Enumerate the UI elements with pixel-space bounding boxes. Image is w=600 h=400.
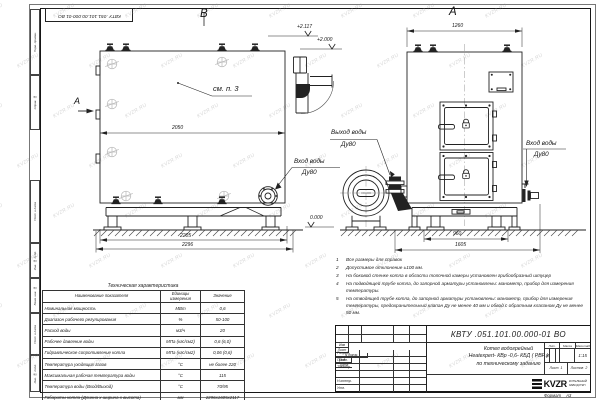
sign-cell (410, 378, 426, 385)
sign-cell (360, 364, 394, 371)
change-cell (410, 326, 426, 335)
spec-cell: Гидравлическое сопротивление котла (43, 347, 161, 358)
view-direction-label-a: А (74, 96, 80, 106)
sign-cell (360, 357, 394, 364)
format-size: А3 (566, 393, 571, 398)
sheet-cell: Лист1 (545, 363, 568, 374)
note-item: 4На подводящей трубе котла, до запорной … (336, 280, 588, 294)
inlet-label-front-line1: Вход воды (526, 140, 557, 147)
spec-cell: МПа (кгс/см2) (161, 347, 201, 358)
change-cell (362, 335, 394, 344)
lit-mass-scale-section: Лит. Масса Масштаб И 1:15 Лист1 Листов2 (544, 343, 590, 374)
dim-1260: 1260 (452, 23, 463, 29)
spec-cell: 20 (201, 325, 245, 336)
change-record-grid (336, 326, 426, 343)
sheet-number: 1 (561, 366, 563, 370)
spec-cell: МВт (161, 303, 201, 314)
table-row: Гидравлическое сопротивление котлаМПа (к… (43, 347, 245, 358)
dim-960: 960 (453, 231, 461, 237)
spec-cell: Рабочее давление воды (43, 336, 161, 347)
sign-header-row: Изм Лист N докум. Подп. Дата (336, 343, 426, 350)
table-row: Температура уходящих газов°Сне более 220 (43, 358, 245, 369)
view-label-a: А (449, 6, 457, 18)
callout-see-note-3: см. п. 3 (213, 84, 239, 93)
table-row: Расход водым3/ч20 (43, 325, 245, 336)
spec-cell: 70/95 (201, 381, 245, 392)
scale-value: 1:15 (575, 349, 590, 363)
note-item: 2Допустимое отклонение ±100 мм. (336, 264, 588, 271)
sign-row-label: Разраб. (336, 350, 360, 357)
spec-cell: Температура воды (Вход/Выход) (43, 381, 161, 392)
drawing-sheet: KVZR.RUKVZR.RUKVZR.RUKVZR.RUKVZR.RUKVZR.… (0, 0, 600, 400)
note-text: На подводящей трубе котла, до запорной а… (346, 280, 588, 294)
spec-header-name: Наименование показателя (43, 291, 161, 303)
spec-header-units: Единицы измерения (161, 291, 201, 303)
spec-cell: м3/ч (161, 325, 201, 336)
change-cell (336, 335, 349, 344)
spec-cell: Температура уходящих газов (43, 358, 161, 369)
sign-row-label: Утв. (336, 385, 360, 392)
sign-row-label: Пров. (336, 357, 360, 364)
note-item: 1Все размеры для справок (336, 256, 588, 263)
sign-cell (410, 357, 426, 364)
note-item: 3На боковой стенке котла в области топоч… (336, 272, 588, 279)
table-row: Максимальная рабочая температура воды°С1… (43, 370, 245, 381)
sign-row-label: Т.контр. (336, 364, 360, 371)
outlet-label-line1: Выход воды (331, 129, 366, 136)
mass-value (560, 349, 575, 363)
spec-cell: °С (161, 370, 201, 381)
spec-cell: 115 (201, 370, 245, 381)
note-number: 5 (336, 295, 346, 316)
note-text: Все размеры для справок (346, 256, 588, 263)
change-cell (410, 335, 426, 344)
change-cell (349, 326, 362, 335)
format-label: Формат А3 (544, 393, 571, 398)
logo-caption-line2: ЗАВОД РЭП (569, 384, 587, 387)
spec-cell: 2296х1605х2117 (201, 392, 245, 400)
note-number: 1 (336, 256, 346, 263)
inlet-label-side-line2: Ду80 (302, 169, 317, 176)
sign-cell (394, 350, 410, 357)
kvzr-logo: KVZR КОТЕЛЬНЫЙ ЗАВОД РЭП (532, 379, 587, 389)
spec-cell: °С (161, 358, 201, 369)
sign-cell (410, 364, 426, 371)
format-word: Формат (544, 393, 561, 398)
spec-cell: Диапазон рабочего регулирования (43, 314, 161, 325)
sign-cell (410, 371, 426, 378)
spec-cell: Номинальная мощность (43, 303, 161, 314)
spec-table-title: Техническая характеристика (42, 282, 244, 290)
kvzr-logo-text: KVZR (544, 379, 567, 389)
sign-cell (410, 350, 426, 357)
sign-row-label: Н.контр. (336, 378, 360, 385)
table-row: Габариты котла (Длинна х ширина х высота… (43, 392, 245, 400)
spec-cell: 0,6 (201, 303, 245, 314)
spec-cell: % (161, 314, 201, 325)
spec-cell: не более 220 (201, 358, 245, 369)
sign-cell (394, 385, 410, 392)
dim-1605: 1605 (455, 242, 466, 248)
table-row: Температура воды (Вход/Выход)°С70/95 (43, 381, 245, 392)
notes-list: 1Все размеры для справок 2Допустимое отк… (336, 256, 588, 317)
elevation-top: +2.117 (297, 24, 312, 30)
sign-cell (360, 350, 394, 357)
drawing-designation: КВТУ .051.101.00.000-01 ВО (426, 326, 590, 343)
spec-cell: °С (161, 381, 201, 392)
spec-cell: Максимальная рабочая температура воды (43, 370, 161, 381)
spec-cell: 0,06 (0,6) (201, 347, 245, 358)
table-row: Рабочее давление водыМПа (кгс/см2)0,6 (6… (43, 336, 245, 347)
spec-cell: Габариты котла (Длинна х ширина х высота… (43, 392, 161, 400)
spec-cell: Расход воды (43, 325, 161, 336)
spec-cell: 0,6 (6,0) (201, 336, 245, 347)
spec-header-value: Значение (201, 291, 245, 303)
elevation-ground: 0.000 (310, 215, 323, 221)
kvzr-logo-icon (532, 379, 542, 389)
sheets-cell: Листов2 (568, 363, 590, 374)
sheets-label: Листов (571, 366, 584, 370)
dim-2205: 2205 (180, 233, 191, 239)
sign-row-label (336, 371, 360, 378)
change-cell (394, 335, 410, 344)
ground-hatch (94, 230, 296, 236)
change-cell (336, 326, 349, 335)
dim-2050: 2050 (172, 125, 183, 131)
inlet-label-front-line2: Ду80 (534, 151, 549, 158)
spec-cell: МПа (кгс/см2) (161, 336, 201, 347)
table-row: Номинальная мощностьМВт0,6 (43, 303, 245, 314)
inlet-label-side-line1: Вход воды (294, 158, 325, 165)
sign-cell (394, 378, 410, 385)
sign-cell (360, 378, 394, 385)
note-number: 3 (336, 272, 346, 279)
organization-cell: KVZR КОТЕЛЬНЫЙ ЗАВОД РЭП (426, 374, 590, 393)
sign-cell (410, 385, 426, 392)
change-cell (349, 335, 362, 344)
note-text: На боковой стенке котла в области топочн… (346, 272, 588, 279)
note-item: 5На отводящей трубе котла, до запорной а… (336, 295, 588, 316)
dim-2296: 2296 (182, 242, 193, 248)
sheet-label: Лист (550, 366, 559, 370)
view-label-b: В (200, 8, 208, 20)
title-block: КВТУ .051.101.00.000-01 ВО Изм Лист N до… (335, 325, 591, 392)
table-row: Диапазон рабочего регулирования%50-100 (43, 314, 245, 325)
note-number: 4 (336, 280, 346, 294)
spec-cell: 50-100 (201, 314, 245, 325)
change-cell (362, 326, 394, 335)
sign-cell (394, 357, 410, 364)
sign-rows: Разраб. Пров. Т.контр. Н.контр. Утв. (336, 350, 426, 392)
note-text: На отводящей трубе котла, до запорной ар… (346, 295, 588, 316)
note-number: 2 (336, 264, 346, 271)
sign-cell (394, 364, 410, 371)
spec-cell: мм (161, 392, 201, 400)
sign-cell (360, 385, 394, 392)
technical-characteristics-table: Техническая характеристика Наименование … (42, 282, 244, 400)
change-cell (394, 326, 410, 335)
note-text: Допустимое отклонение ±100 мм. (346, 264, 588, 271)
sign-cell (394, 371, 410, 378)
sheets-number: 2 (585, 366, 587, 370)
elevation-flue: +2.000 (317, 37, 332, 43)
sign-cell (360, 371, 394, 378)
outlet-label-line2: Ду80 (341, 141, 356, 148)
